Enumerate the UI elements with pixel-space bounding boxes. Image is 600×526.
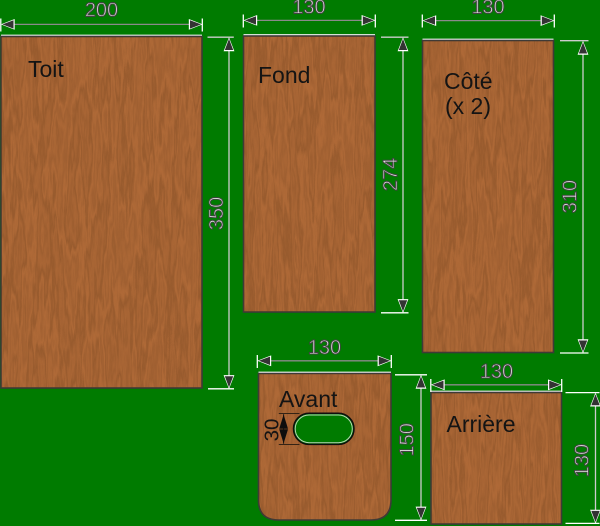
svg-text:Arrière: Arrière [447,411,516,437]
svg-text:30: 30 [260,419,283,442]
svg-text:200: 200 [85,0,118,22]
svg-text:Toit: Toit [28,56,64,82]
svg-text:130: 130 [471,0,504,19]
svg-text:130: 130 [308,337,341,359]
svg-text:Côté: Côté [444,68,493,94]
svg-text:Avant: Avant [279,386,338,412]
svg-text:Fond: Fond [258,62,310,88]
svg-text:130: 130 [480,361,513,383]
svg-text:(x 2): (x 2) [445,93,491,119]
svg-text:274: 274 [380,158,402,191]
svg-text:310: 310 [560,180,582,213]
svg-text:350: 350 [206,197,228,230]
svg-text:130: 130 [571,444,593,477]
svg-text:130: 130 [292,0,325,19]
svg-text:150: 150 [397,423,419,456]
